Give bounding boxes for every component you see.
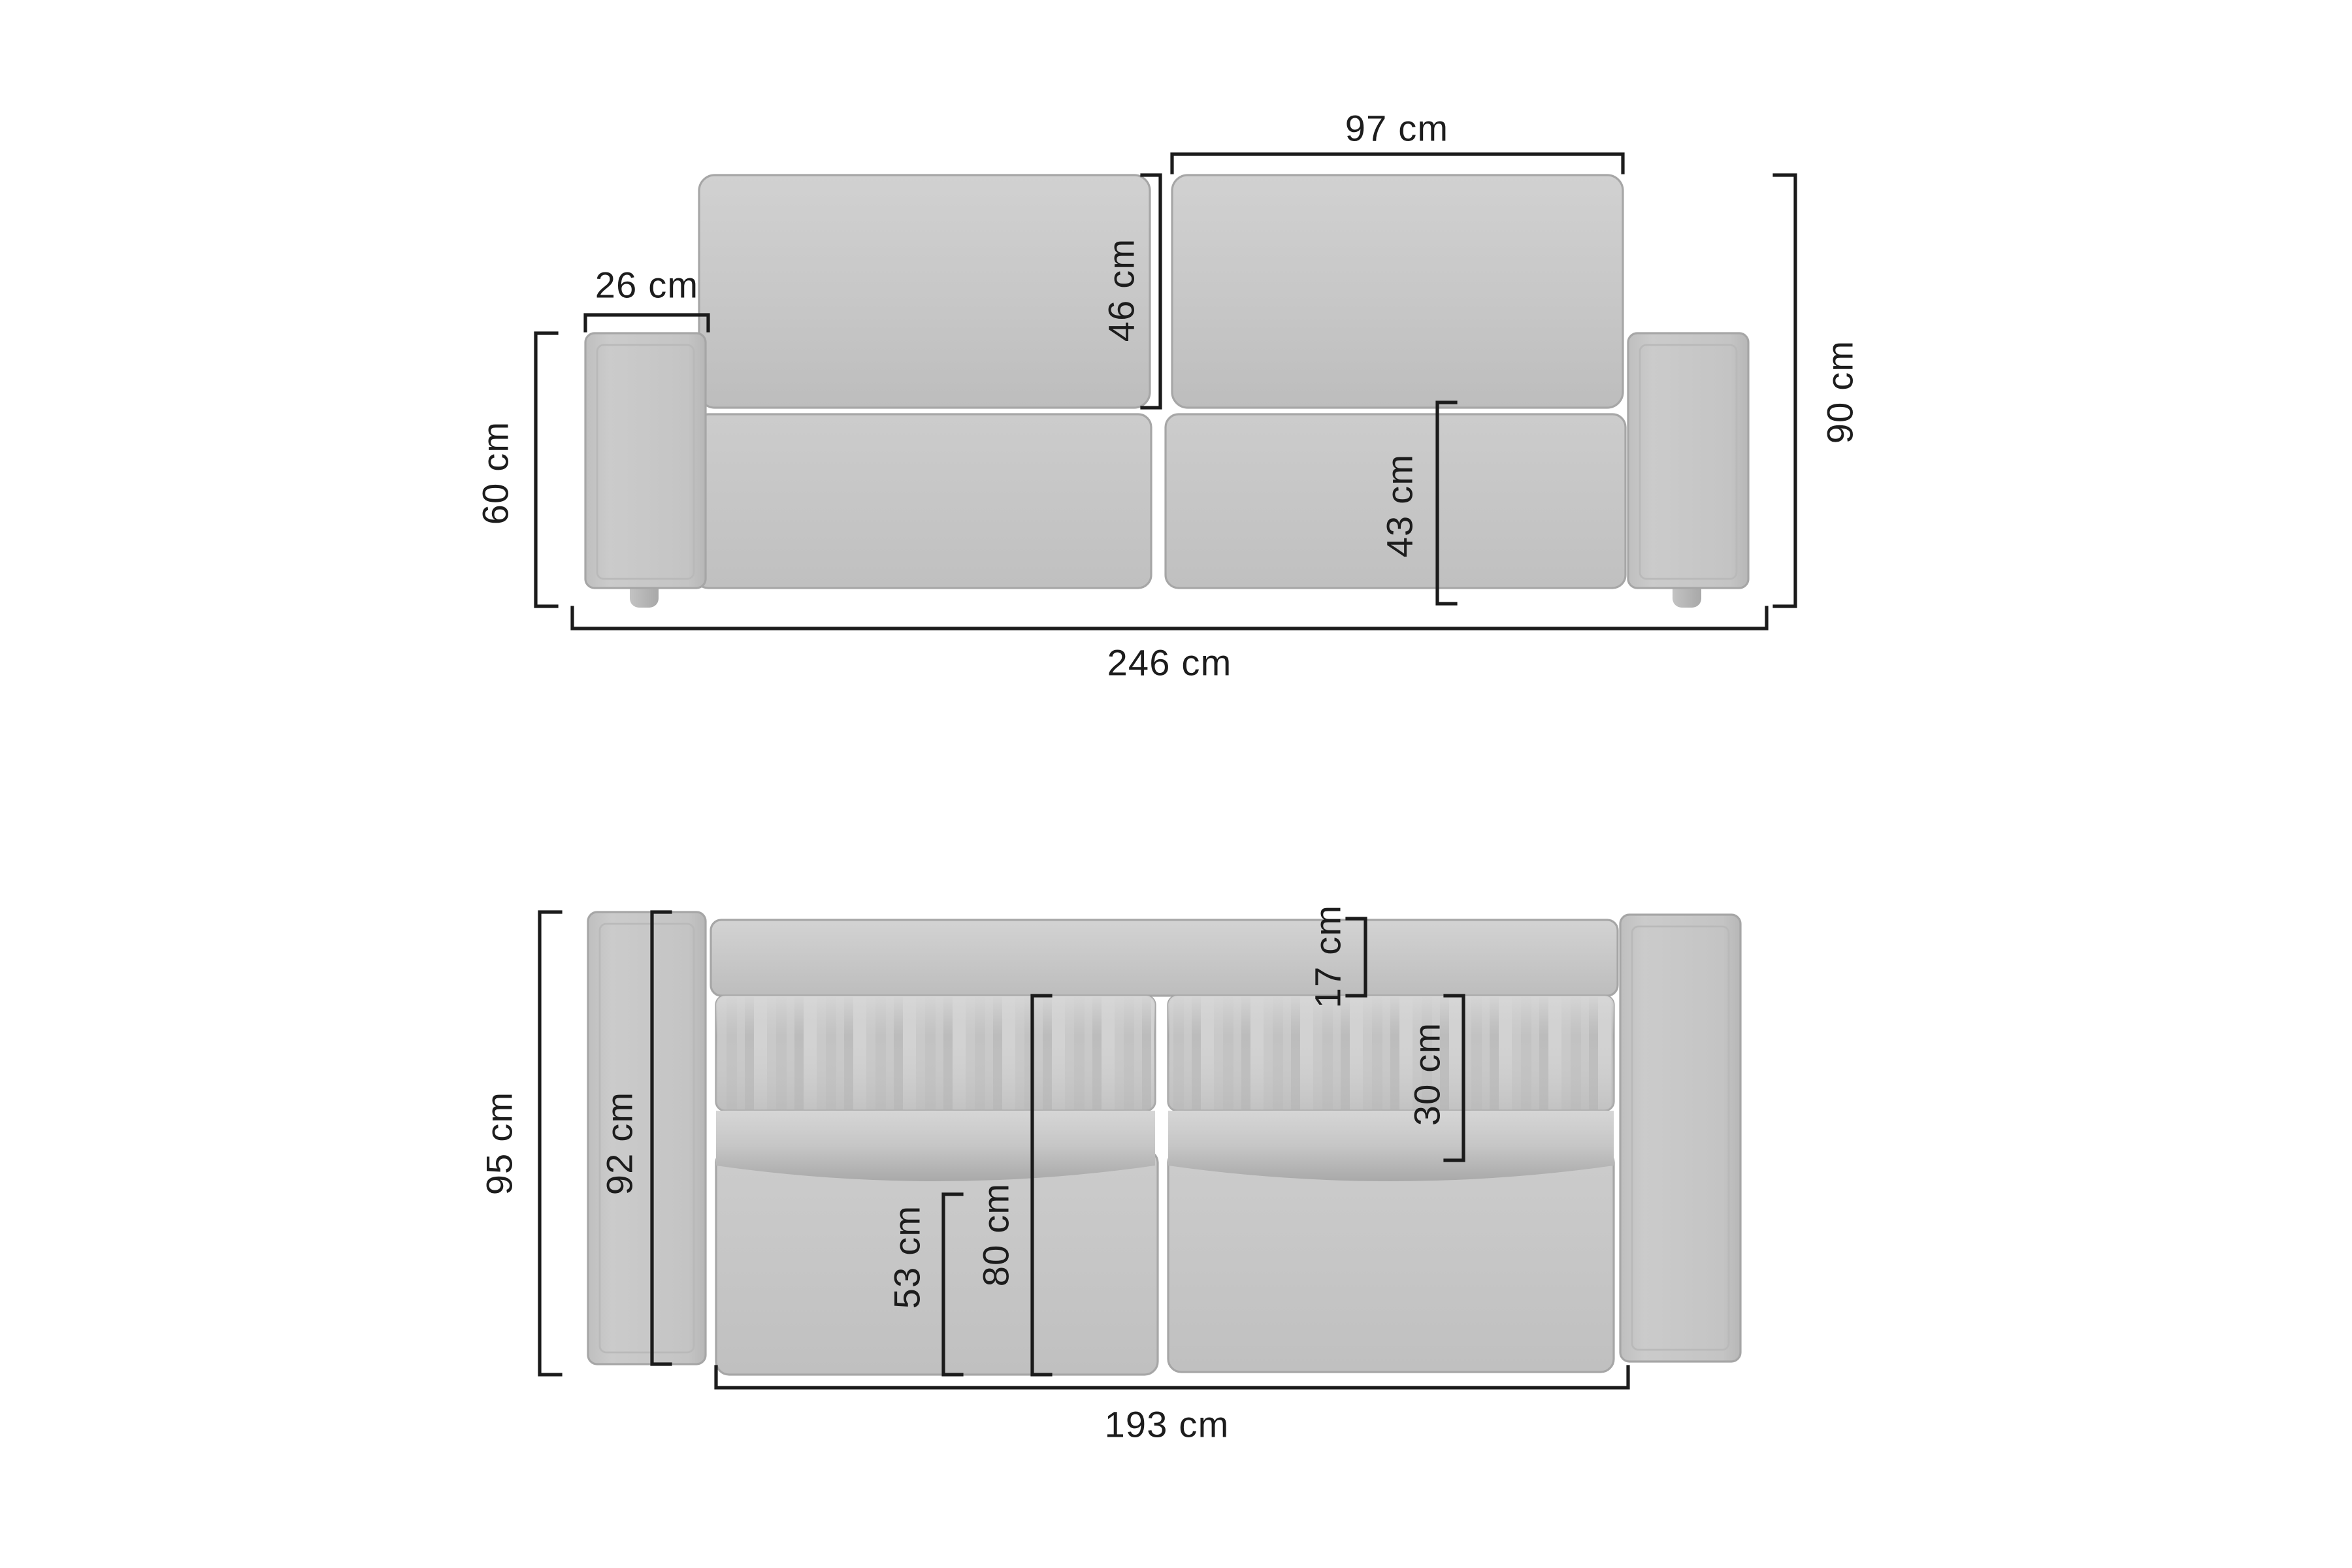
top-cushion-roll-right xyxy=(1168,1111,1614,1181)
front-view: 97 cm 26 cm 46 cm 90 cm 60 cm 43 cm xyxy=(475,108,1861,683)
top-back-rail xyxy=(711,920,1618,996)
top-cushion-roll-left xyxy=(716,1111,1155,1181)
front-arm-left xyxy=(585,333,706,588)
dim-arm-height: 60 cm xyxy=(475,333,557,606)
dim-overall-width-line xyxy=(572,608,1767,629)
dim-inner-width: 193 cm xyxy=(716,1367,1628,1445)
top-seat-panel-left xyxy=(716,1150,1158,1375)
dim-backrest-height-label: 46 cm xyxy=(1101,238,1142,342)
top-seat-panel-right xyxy=(1168,1150,1614,1372)
top-back-cushion-right xyxy=(1168,996,1614,1111)
top-view: 95 cm 92 cm 17 cm 30 cm 53 cm 80 cm xyxy=(479,905,1741,1445)
dim-overall-depth-line xyxy=(540,912,561,1375)
dim-back-rail-depth-label: 17 cm xyxy=(1307,905,1348,1009)
dim-arm-width-label: 26 cm xyxy=(595,265,699,306)
dim-overall-height-label: 90 cm xyxy=(1820,340,1861,444)
dim-overall-depth-label: 95 cm xyxy=(479,1092,520,1196)
front-backrest-cushion-right xyxy=(1172,175,1623,408)
dim-overall-depth: 95 cm xyxy=(479,912,561,1375)
dim-inner-width-label: 193 cm xyxy=(1105,1404,1230,1445)
dim-overall-height-line xyxy=(1774,175,1795,606)
dim-seat-clear-depth-label: 53 cm xyxy=(887,1205,928,1309)
dim-back-cushion-depth-label: 30 cm xyxy=(1407,1022,1448,1126)
front-arm-right xyxy=(1628,333,1748,588)
dim-seat-height-label: 43 cm xyxy=(1379,454,1420,558)
dim-arm-height-line xyxy=(536,333,557,606)
dim-overall-width-label: 246 cm xyxy=(1107,642,1232,683)
top-arm-right xyxy=(1620,915,1740,1362)
dim-inner-depth-label: 80 cm xyxy=(975,1183,1017,1287)
top-back-cushion-left xyxy=(716,996,1155,1111)
dim-arm-width: 26 cm xyxy=(585,265,708,331)
dim-arm-height-label: 60 cm xyxy=(475,421,516,525)
front-seat-cushion-left xyxy=(695,414,1151,588)
front-backrest-cushion-left xyxy=(699,175,1150,408)
dim-back-cushion-width: 97 cm xyxy=(1172,108,1623,173)
dim-arm-width-line xyxy=(585,315,708,331)
dim-overall-width: 246 cm xyxy=(572,608,1767,683)
sofa-dimension-diagram: 97 cm 26 cm 46 cm 90 cm 60 cm 43 cm xyxy=(0,0,2352,1568)
dim-arm-depth-label: 92 cm xyxy=(599,1092,640,1196)
dim-back-cushion-width-line xyxy=(1172,154,1623,172)
dim-back-cushion-width-label: 97 cm xyxy=(1345,108,1449,149)
dim-overall-height: 90 cm xyxy=(1774,175,1861,606)
